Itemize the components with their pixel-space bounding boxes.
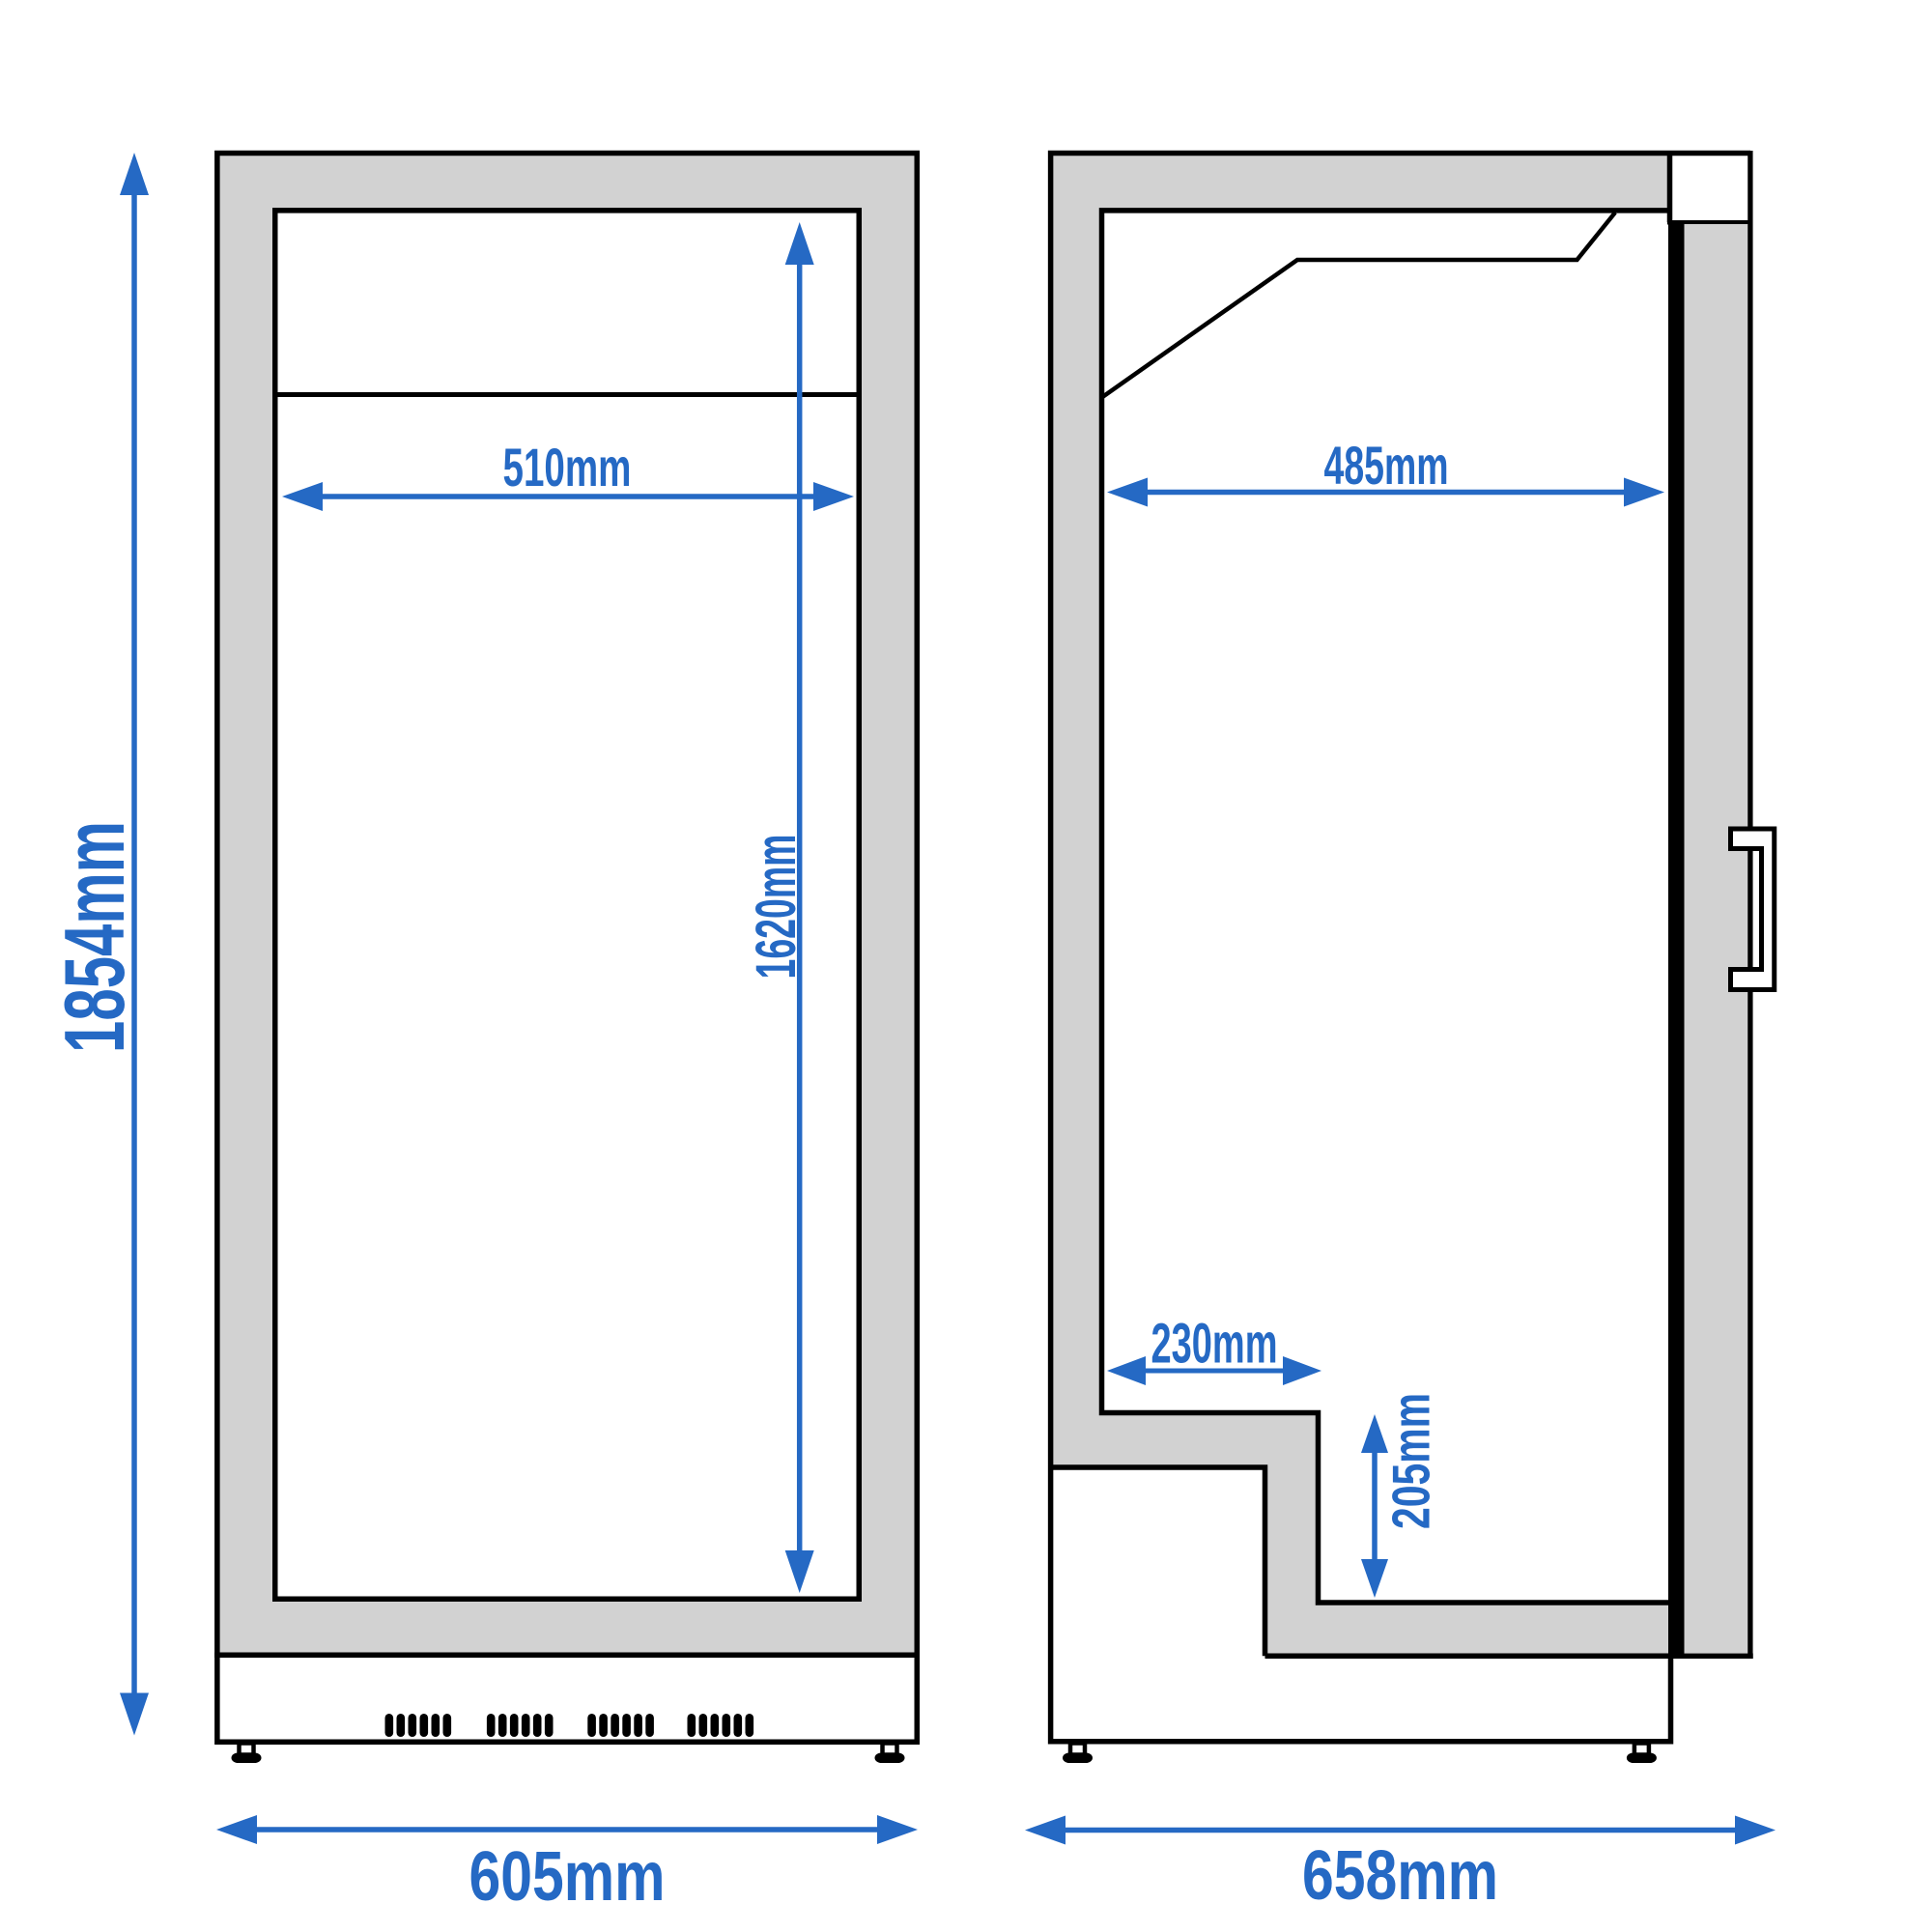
svg-text:658mm: 658mm: [1302, 1837, 1498, 1915]
svg-text:1854mm: 1854mm: [46, 821, 142, 1053]
svg-text:1620mm: 1620mm: [745, 835, 808, 980]
svg-text:605mm: 605mm: [469, 1838, 666, 1916]
svg-text:205mm: 205mm: [1381, 1393, 1441, 1529]
svg-text:485mm: 485mm: [1324, 435, 1449, 496]
svg-text:230mm: 230mm: [1151, 1313, 1278, 1376]
svg-text:510mm: 510mm: [503, 437, 632, 497]
